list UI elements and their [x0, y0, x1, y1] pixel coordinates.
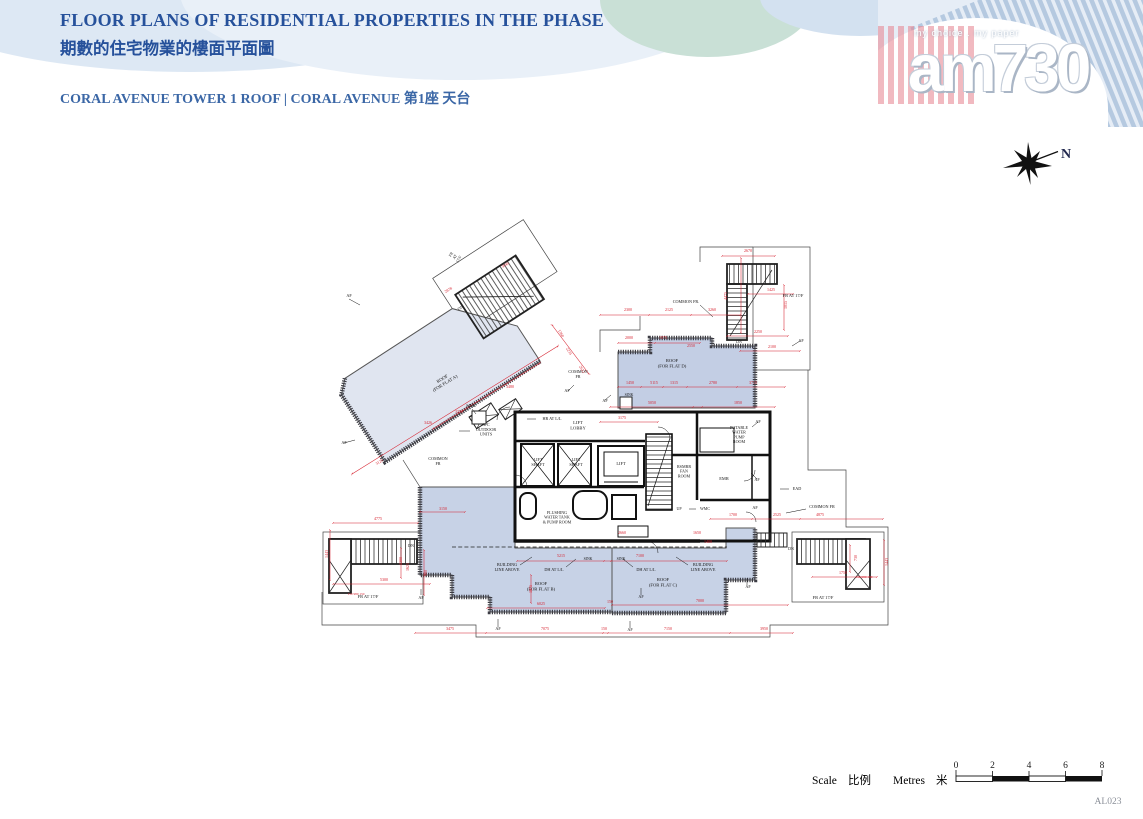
room-label: BUILDINGLINE ABOVE: [495, 562, 520, 572]
floorplan-page: my choice . my paper am730 FLOOR PLANS O…: [0, 0, 1143, 819]
room-label: SINK: [617, 557, 626, 561]
dim-label: 1625: [405, 563, 410, 571]
dim-label: 7100: [636, 553, 644, 558]
metres-label-zh: 米: [936, 774, 948, 787]
floor-plan-drawing: N: [0, 0, 1143, 819]
room-label: DH AT L/L: [636, 567, 656, 572]
dim-label: 1700: [729, 512, 737, 517]
scale-label-zh: 比例: [848, 773, 871, 787]
dim-label: 1975: [659, 335, 667, 340]
dim-label: 1650: [693, 530, 701, 535]
scale-tick-8: 8: [1100, 761, 1105, 771]
dim-label: 3260: [708, 307, 716, 312]
dim-label: 2525: [773, 512, 781, 517]
room-label: AF: [754, 477, 760, 482]
dim-label: 1850: [734, 400, 742, 405]
dim-label: 2670: [744, 248, 752, 253]
water-tank: [520, 493, 536, 519]
room-label: AF: [341, 440, 347, 445]
dim-label: 4775: [374, 516, 382, 521]
dim-label: 5050: [648, 400, 656, 405]
dim-label: 1750: [839, 570, 847, 575]
dim-label: 2878: [443, 285, 452, 293]
room-label: AF: [602, 398, 608, 403]
dim-label: 2660: [618, 530, 626, 535]
dim-label: 5215: [557, 553, 565, 558]
dim-label: 4875: [816, 512, 824, 517]
dim-label: 3950: [760, 626, 768, 631]
dim-label: 2235: [565, 346, 573, 355]
room-label: DN: [788, 546, 794, 551]
room-label: EMR: [719, 476, 729, 481]
room-label: FR AT 17/F: [813, 595, 834, 600]
dim-label: 150 980 150: [348, 592, 365, 596]
room-label: LIFTSHAFT: [569, 457, 583, 467]
dim-label: 1300: [398, 557, 403, 565]
page-code: AL023: [1095, 797, 1122, 807]
room-label: FLUSHINGWATER TANK& PUMP ROOM: [543, 510, 572, 524]
scale-tick-6: 6: [1063, 761, 1068, 771]
dim-label: 730: [853, 555, 858, 561]
room-label: AF: [495, 626, 501, 631]
room-label: LIFTLOBBY: [570, 420, 586, 430]
room-label: DN: [408, 543, 414, 548]
dim-label: 5300: [380, 577, 388, 582]
room-label: BUILDINGLINE ABOVE: [691, 562, 716, 572]
dim-label: 150: [607, 599, 613, 604]
room-label: AF: [627, 627, 633, 632]
dim-label: 2300: [624, 307, 632, 312]
water-tank-2: [573, 491, 607, 519]
room-label: AF: [745, 584, 751, 589]
room-label: HR AT L/L: [542, 416, 561, 421]
dim-label: 1443: [884, 558, 889, 566]
dim-label: 1450: [626, 380, 634, 385]
room-label: EAD: [793, 486, 802, 491]
dim-label: 3426: [424, 420, 432, 425]
room-label: LIFT: [616, 461, 626, 466]
dim-label: 2250: [754, 329, 762, 334]
room-label: DH AT L/L: [544, 567, 564, 572]
dim-label: 3150: [439, 506, 447, 511]
dim-label: 3475: [446, 626, 454, 631]
room-label: UP: [676, 506, 682, 511]
room-label: AF: [418, 595, 424, 600]
room-label: FR AT 17/F: [783, 293, 804, 298]
room-label: AF: [564, 388, 570, 393]
room-label: WMC: [700, 506, 710, 511]
room-label: FRAT17/F: [447, 249, 463, 263]
dim-label: 7075: [541, 626, 549, 631]
dim-label: 1015: [783, 301, 788, 309]
flat-d-stair: [727, 284, 747, 340]
dim-label: 1425: [767, 287, 775, 292]
dim-label: 150: [601, 626, 607, 631]
room-label: COMMON FR.: [673, 299, 700, 304]
room-label: SINK: [466, 403, 476, 408]
room-label: DN: [736, 339, 742, 344]
room-label: SINK: [625, 393, 634, 397]
landing-block: [757, 533, 787, 547]
dim-label: 3715: [749, 380, 757, 385]
roof-flat-d: [618, 338, 755, 408]
scale-label-en: Scale: [812, 775, 837, 787]
north-arrow-icon: N: [1003, 142, 1071, 185]
scale-tick-2: 2: [990, 761, 995, 771]
metres-label-en: Metres: [893, 775, 925, 787]
dim-label: 150 980 150: [856, 575, 873, 579]
scale-bar: Scale 比例 Metres 米 0 2 4 6 8: [812, 761, 1105, 787]
dim-label: 3480: [506, 384, 514, 389]
room-label: COMMON FR: [809, 504, 835, 509]
dim-label: 3370: [455, 409, 463, 414]
scale-tick-4: 4: [1027, 761, 1032, 771]
dim-label: 2550: [687, 343, 695, 348]
room-label: AF: [798, 338, 804, 343]
room-label: AF: [346, 293, 352, 298]
dim-label: 1400: [704, 539, 712, 544]
dim-label: 3175: [618, 415, 626, 420]
dim-label: 2100: [768, 344, 776, 349]
dim-label: 1875: [528, 585, 533, 593]
flat-a-wing: [315, 220, 609, 488]
room-label: POTABLEWATERPUMPROOM: [730, 425, 749, 444]
north-label: N: [1061, 147, 1071, 162]
dim-label: 1443: [324, 550, 329, 558]
dim-label: 7000: [696, 598, 704, 603]
room-label: RSMRRFANROOM: [677, 464, 691, 478]
scale-tick-0: 0: [954, 761, 959, 771]
dim-label: 7150: [664, 626, 672, 631]
dim-label: 2780: [709, 380, 717, 385]
room-label: AF: [638, 594, 644, 599]
room-label: AF: [752, 505, 758, 510]
dim-label: 2000: [625, 335, 633, 340]
dim-label: 6025: [537, 601, 545, 606]
dim-label: 1315: [670, 380, 678, 385]
dim-label: 980: [423, 570, 428, 576]
dim-label: 5115: [650, 380, 658, 385]
dim-label: 2125: [665, 307, 673, 312]
room-label: SINK: [584, 557, 593, 561]
room-label: COMMONFR: [428, 456, 447, 466]
dim-label: 4475: [723, 292, 728, 300]
room-label: AF: [755, 419, 761, 424]
